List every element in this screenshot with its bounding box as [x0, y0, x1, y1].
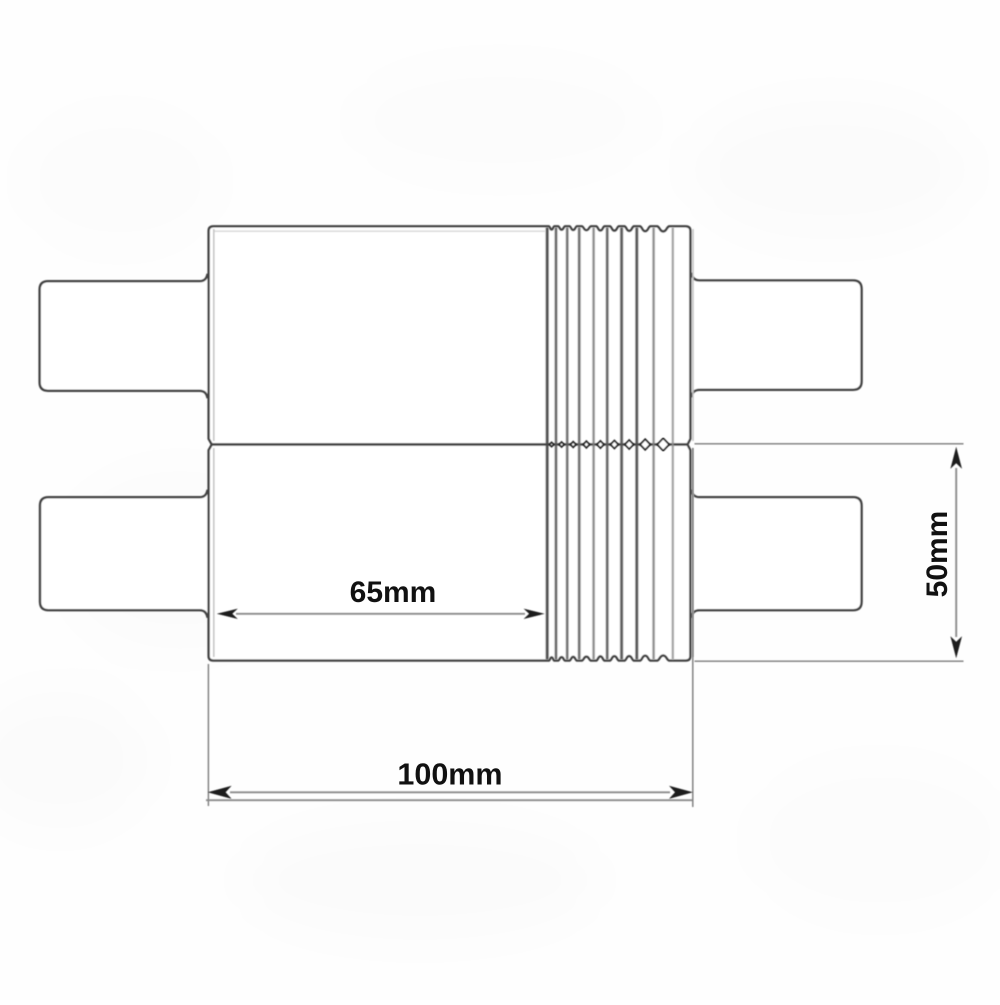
svg-text:65mm: 65mm — [350, 576, 437, 609]
svg-text:50mm: 50mm — [921, 511, 954, 598]
svg-text:100mm: 100mm — [397, 758, 502, 792]
